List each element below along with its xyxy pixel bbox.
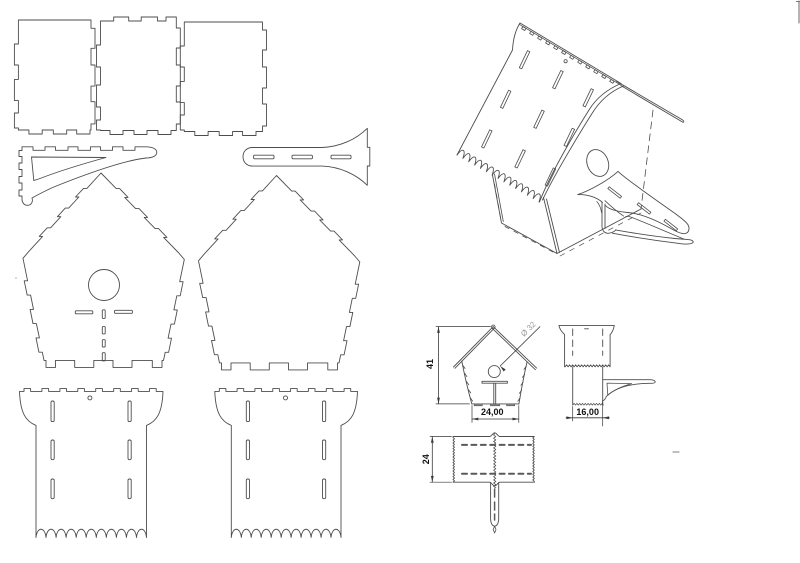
svg-text:41: 41 xyxy=(425,359,435,369)
svg-text:16,00: 16,00 xyxy=(576,407,599,417)
svg-text:24: 24 xyxy=(421,454,431,464)
svg-text:24,00: 24,00 xyxy=(481,407,504,417)
